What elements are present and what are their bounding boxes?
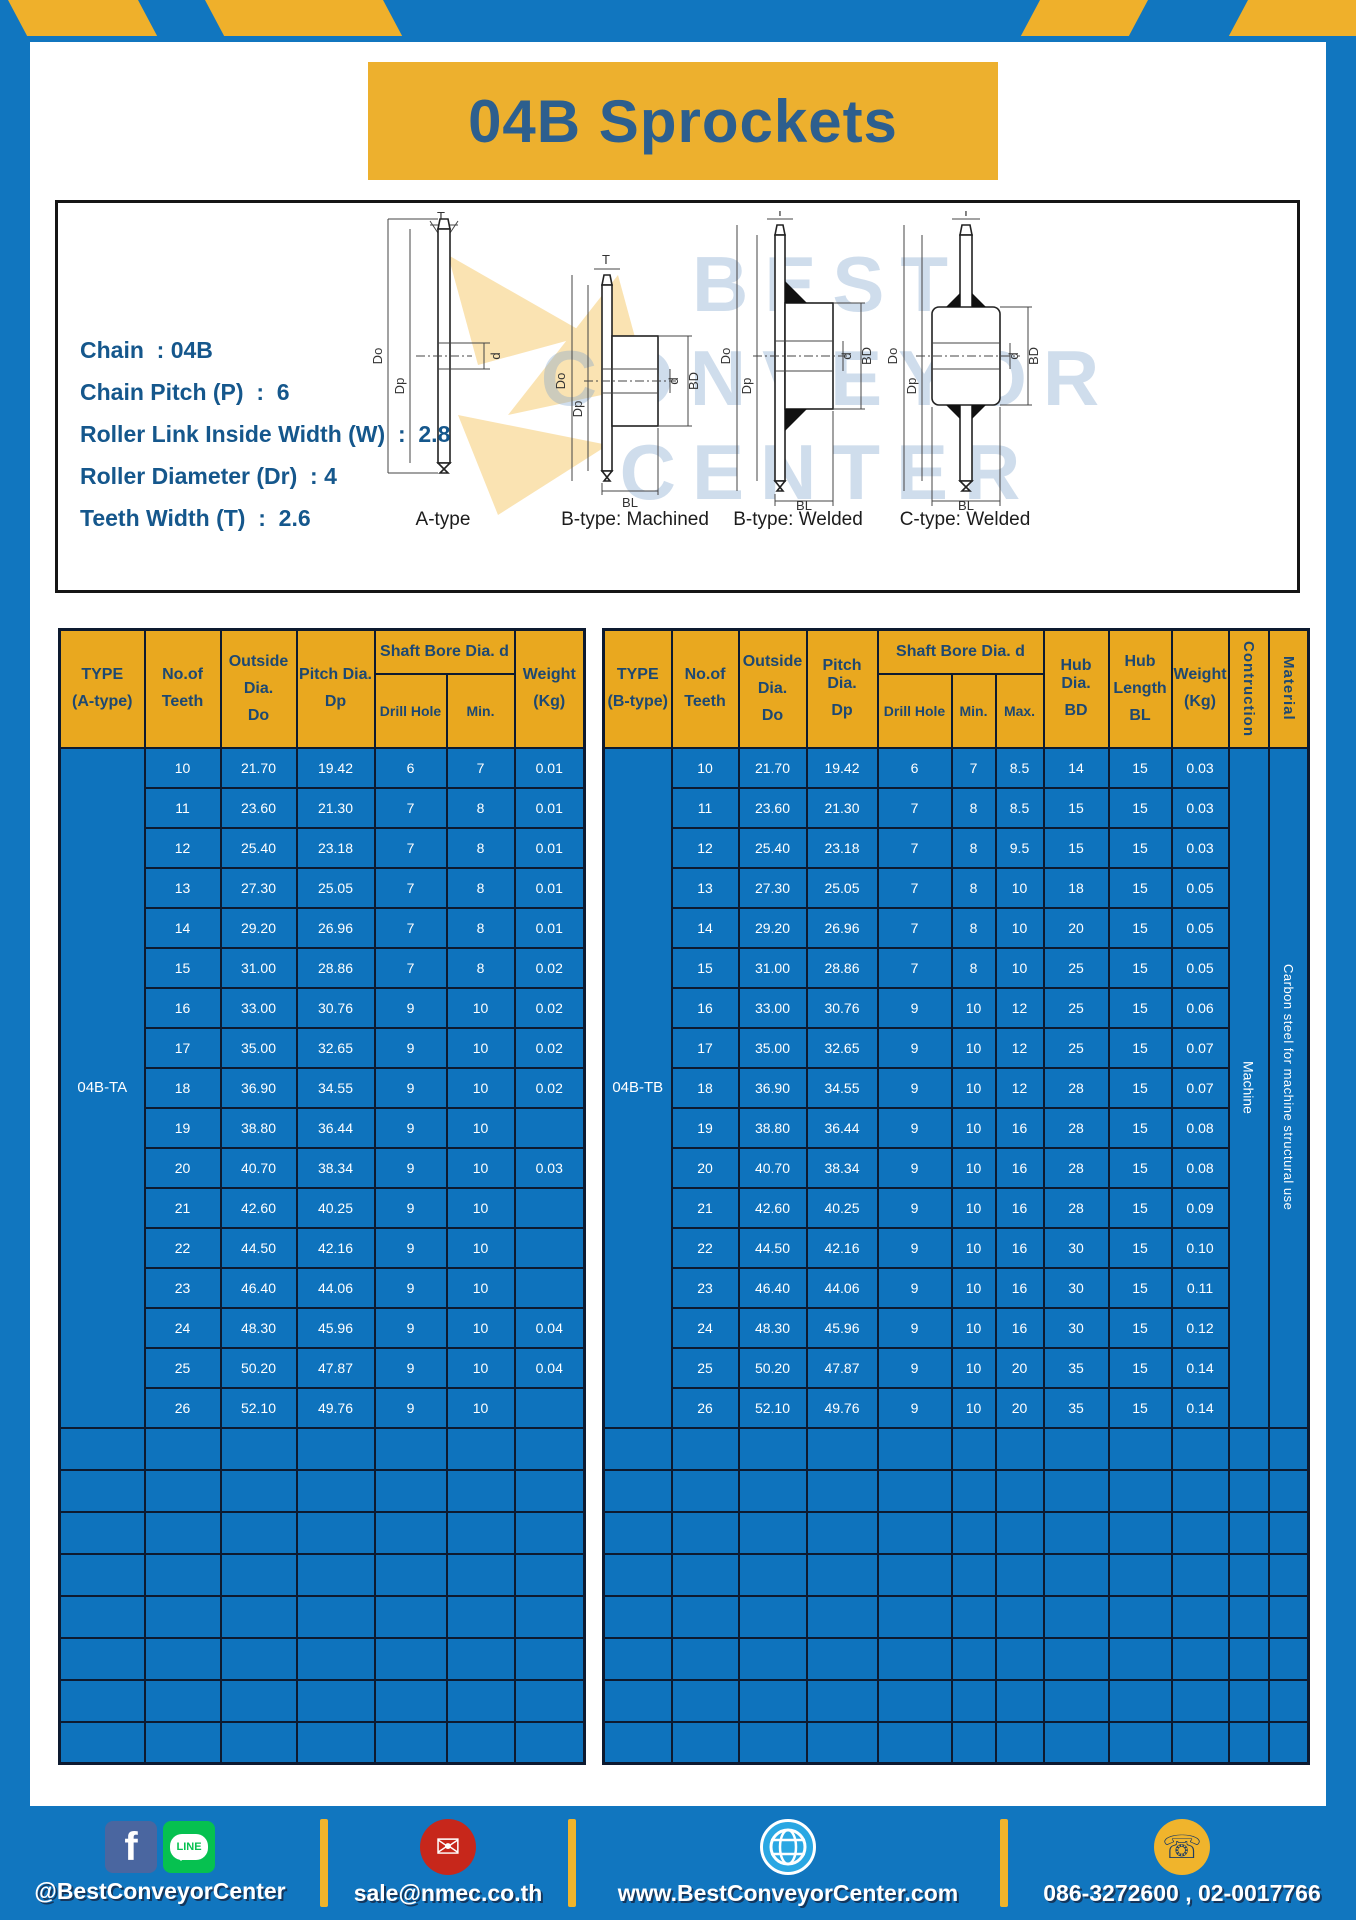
top-striped-band <box>0 0 1356 42</box>
data-cell: 28.86 <box>807 948 878 988</box>
svg-text:Dp: Dp <box>570 401 585 418</box>
data-cell: 26 <box>145 1388 221 1428</box>
data-cell: 25.05 <box>297 868 375 908</box>
empty-cell <box>1229 1428 1269 1470</box>
construction-value-cell: Machine <box>1229 748 1269 1428</box>
data-cell: 7 <box>375 948 447 988</box>
empty-cell <box>297 1680 375 1722</box>
empty-table-row <box>60 1470 585 1512</box>
data-cell: 10 <box>952 1228 996 1268</box>
data-cell: 18 <box>672 1068 739 1108</box>
data-cell: 0.10 <box>1172 1228 1229 1268</box>
empty-cell <box>297 1470 375 1512</box>
footer-divider <box>568 1819 576 1907</box>
empty-cell <box>604 1470 672 1512</box>
empty-cell <box>996 1638 1044 1680</box>
data-cell <box>515 1228 585 1268</box>
data-cell: 30.76 <box>297 988 375 1028</box>
data-cell: 9 <box>878 988 952 1028</box>
data-cell: 10 <box>952 1148 996 1188</box>
data-cell: 0.02 <box>515 988 585 1028</box>
footer-divider <box>320 1819 328 1907</box>
empty-cell <box>672 1512 739 1554</box>
empty-table-row <box>60 1722 585 1764</box>
data-cell: 8 <box>447 788 515 828</box>
data-cell: 10 <box>145 748 221 788</box>
empty-cell <box>60 1554 145 1596</box>
empty-cell <box>878 1722 952 1764</box>
data-cell: 10 <box>952 1028 996 1068</box>
data-cell: 0.01 <box>515 908 585 948</box>
empty-table-row <box>604 1722 1309 1764</box>
line-icon: LINE <box>163 1821 215 1873</box>
data-cell: 28 <box>1044 1108 1109 1148</box>
table-row: 1225.4023.18789.515150.03 <box>604 828 1309 868</box>
data-cell: 10 <box>952 1188 996 1228</box>
empty-cell <box>952 1638 996 1680</box>
empty-cell <box>375 1680 447 1722</box>
data-cell: 12 <box>996 1028 1044 1068</box>
decor-stripe <box>1229 0 1356 36</box>
data-cell: 24 <box>145 1308 221 1348</box>
empty-cell <box>1044 1470 1109 1512</box>
empty-cell <box>145 1554 221 1596</box>
data-cell: 10 <box>447 1388 515 1428</box>
empty-cell <box>447 1680 515 1722</box>
data-cell: 16 <box>996 1308 1044 1348</box>
col-header-hub-length: HubLengthBL <box>1109 630 1172 748</box>
empty-cell <box>1172 1470 1229 1512</box>
data-cell <box>515 1388 585 1428</box>
empty-cell <box>375 1512 447 1554</box>
empty-cell <box>952 1428 996 1470</box>
data-cell: 46.40 <box>739 1268 807 1308</box>
data-cell: 7 <box>878 788 952 828</box>
empty-cell <box>515 1596 585 1638</box>
data-cell: 25 <box>1044 948 1109 988</box>
col-header-teeth: No.ofTeeth <box>145 630 221 748</box>
empty-cell <box>221 1596 297 1638</box>
decor-stripe <box>8 0 157 36</box>
table-row: 1836.9034.559101228150.07 <box>604 1068 1309 1108</box>
data-cell: 38.80 <box>221 1108 297 1148</box>
empty-cell <box>878 1428 952 1470</box>
data-cell: 0.03 <box>1172 788 1229 828</box>
data-cell: 16 <box>996 1148 1044 1188</box>
table-row: 2040.7038.349101628150.08 <box>604 1148 1309 1188</box>
empty-cell <box>60 1722 145 1764</box>
empty-cell <box>1044 1512 1109 1554</box>
data-cell: 8 <box>952 948 996 988</box>
empty-cell <box>145 1512 221 1554</box>
data-cell: 0.09 <box>1172 1188 1229 1228</box>
empty-cell <box>878 1554 952 1596</box>
data-cell: 13 <box>145 868 221 908</box>
empty-cell <box>1269 1596 1309 1638</box>
data-cell: 10 <box>447 1228 515 1268</box>
empty-cell <box>375 1596 447 1638</box>
empty-cell <box>807 1428 878 1470</box>
empty-table-row <box>604 1596 1309 1638</box>
data-cell: 44.50 <box>739 1228 807 1268</box>
data-cell: 8 <box>447 948 515 988</box>
svg-text:BD: BD <box>1026 347 1041 365</box>
data-cell: 38.34 <box>807 1148 878 1188</box>
data-cell: 20 <box>1044 908 1109 948</box>
data-cell: 49.76 <box>297 1388 375 1428</box>
empty-cell <box>1172 1638 1229 1680</box>
empty-cell <box>739 1428 807 1470</box>
data-cell: 9 <box>878 1388 952 1428</box>
datasheet-page: 04B Sprockets BEST CONVEYOR CENTER Chain… <box>0 0 1356 1920</box>
data-cell: 14 <box>672 908 739 948</box>
svg-text:T: T <box>602 252 610 267</box>
empty-cell <box>1109 1470 1172 1512</box>
globe-icon <box>760 1819 816 1875</box>
data-cell: 12 <box>145 828 221 868</box>
empty-cell <box>1109 1428 1172 1470</box>
svg-text:BL: BL <box>622 495 638 510</box>
data-cell: 9 <box>878 1188 952 1228</box>
data-cell: 40.70 <box>221 1148 297 1188</box>
empty-cell <box>1172 1554 1229 1596</box>
data-cell: 10 <box>447 1068 515 1108</box>
data-cell: 10 <box>952 1388 996 1428</box>
data-cell: 30.76 <box>807 988 878 1028</box>
data-cell: 10 <box>996 868 1044 908</box>
data-cell: 19 <box>145 1108 221 1148</box>
data-cell: 15 <box>1109 1148 1172 1188</box>
data-cell: 45.96 <box>807 1308 878 1348</box>
data-cell: 15 <box>1109 1308 1172 1348</box>
empty-cell <box>996 1428 1044 1470</box>
table-row: 2244.5042.169101630150.10 <box>604 1228 1309 1268</box>
data-cell: 9 <box>375 1028 447 1068</box>
data-cell: 16 <box>996 1268 1044 1308</box>
col-header-min: Min. <box>447 674 515 748</box>
empty-cell <box>807 1512 878 1554</box>
col-header-hub-dia: Hub Dia.BD <box>1044 630 1109 748</box>
data-cell: 23.18 <box>297 828 375 868</box>
data-cell: 23 <box>145 1268 221 1308</box>
empty-cell <box>375 1638 447 1680</box>
email-address: sale@nmec.co.th <box>354 1880 543 1907</box>
footer-social-section: f LINE @BestConveyorCenter <box>0 1806 320 1920</box>
empty-cell <box>807 1470 878 1512</box>
empty-cell <box>672 1554 739 1596</box>
data-cell: 42.60 <box>739 1188 807 1228</box>
empty-cell <box>952 1512 996 1554</box>
data-cell: 0.02 <box>515 1068 585 1108</box>
data-cell: 23.60 <box>221 788 297 828</box>
drawing-type-label: B-type: Welded <box>703 509 893 531</box>
empty-cell <box>604 1512 672 1554</box>
empty-cell <box>739 1596 807 1638</box>
data-cell: 19.42 <box>807 748 878 788</box>
decor-stripe <box>1021 0 1148 36</box>
empty-cell <box>996 1722 1044 1764</box>
empty-cell <box>515 1428 585 1470</box>
empty-cell <box>447 1554 515 1596</box>
contact-footer: f LINE @BestConveyorCenter ✉ sale@nmec.c… <box>0 1806 1356 1920</box>
data-cell: 8 <box>952 908 996 948</box>
data-cell: 20 <box>996 1348 1044 1388</box>
table-row: 1938.8036.449101628150.08 <box>604 1108 1309 1148</box>
data-cell: 21.30 <box>297 788 375 828</box>
data-cell: 23.60 <box>739 788 807 828</box>
data-cell: 15 <box>1109 1348 1172 1388</box>
table-row: 2346.4044.069101630150.11 <box>604 1268 1309 1308</box>
table-row: 04B-TB1021.7019.42678.514150.03MachineCa… <box>604 748 1309 788</box>
facebook-icon: f <box>105 1821 157 1873</box>
empty-table-row <box>60 1638 585 1680</box>
data-cell: 50.20 <box>739 1348 807 1388</box>
empty-cell <box>1269 1638 1309 1680</box>
empty-cell <box>1172 1428 1229 1470</box>
empty-cell <box>221 1512 297 1554</box>
empty-cell <box>145 1638 221 1680</box>
data-cell: 9 <box>878 1308 952 1348</box>
empty-cell <box>807 1554 878 1596</box>
svg-text:d: d <box>488 352 503 359</box>
empty-cell <box>604 1428 672 1470</box>
empty-cell <box>447 1512 515 1554</box>
data-cell: 13 <box>672 868 739 908</box>
empty-cell <box>604 1638 672 1680</box>
data-cell: 40.70 <box>739 1148 807 1188</box>
data-cell: 9 <box>375 1348 447 1388</box>
empty-cell <box>739 1722 807 1764</box>
empty-cell <box>1229 1596 1269 1638</box>
data-cell: 0.03 <box>1172 828 1229 868</box>
empty-cell <box>1109 1722 1172 1764</box>
data-cell: 33.00 <box>221 988 297 1028</box>
empty-cell <box>878 1470 952 1512</box>
table-row: 2142.6040.259101628150.09 <box>604 1188 1309 1228</box>
empty-table-row <box>604 1428 1309 1470</box>
data-cell: 7 <box>447 748 515 788</box>
data-cell: 0.14 <box>1172 1348 1229 1388</box>
data-cell: 42.60 <box>221 1188 297 1228</box>
data-cell: 24 <box>672 1308 739 1348</box>
data-cell: 0.04 <box>515 1348 585 1388</box>
data-cell: 27.30 <box>739 868 807 908</box>
email-icon: ✉ <box>420 1819 476 1875</box>
data-cell: 15 <box>1109 868 1172 908</box>
empty-table-row <box>60 1428 585 1470</box>
table-row: 2550.2047.879102035150.14 <box>604 1348 1309 1388</box>
table-row: 1735.0032.659101225150.07 <box>604 1028 1309 1068</box>
empty-cell <box>515 1512 585 1554</box>
technical-drawing-panel: BEST CONVEYOR CENTER Chain : 04B Chain P… <box>55 200 1300 593</box>
empty-cell <box>739 1638 807 1680</box>
data-cell: 7 <box>952 748 996 788</box>
empty-cell <box>60 1596 145 1638</box>
table-row: 2448.3045.969101630150.12 <box>604 1308 1309 1348</box>
data-cell: 7 <box>878 948 952 988</box>
data-cell: 28 <box>1044 1068 1109 1108</box>
data-cell: 47.87 <box>297 1348 375 1388</box>
data-cell: 44.06 <box>297 1268 375 1308</box>
data-cell: 21 <box>672 1188 739 1228</box>
empty-cell <box>604 1554 672 1596</box>
data-cell: 15 <box>1044 788 1109 828</box>
data-cell: 16 <box>145 988 221 1028</box>
data-cell: 28.86 <box>297 948 375 988</box>
empty-cell <box>1269 1470 1309 1512</box>
data-cell: 15 <box>1109 908 1172 948</box>
table-row: 1429.2026.96781020150.05 <box>604 908 1309 948</box>
data-cell: 28 <box>1044 1148 1109 1188</box>
empty-cell <box>1269 1512 1309 1554</box>
data-cell: 21.70 <box>739 748 807 788</box>
data-cell: 23 <box>672 1268 739 1308</box>
data-cell: 0.01 <box>515 788 585 828</box>
table-row: 04B-TA1021.7019.42670.01 <box>60 748 585 788</box>
data-cell: 10 <box>447 1108 515 1148</box>
empty-cell <box>1044 1680 1109 1722</box>
website-url: www.BestConveyorCenter.com <box>618 1880 958 1907</box>
col-header-drill-hole: Drill Hole <box>878 674 952 748</box>
data-cell: 10 <box>996 948 1044 988</box>
page-title: 04B Sprockets <box>468 87 898 156</box>
empty-cell <box>145 1680 221 1722</box>
footer-website-section: www.BestConveyorCenter.com <box>576 1806 1000 1920</box>
empty-cell <box>60 1638 145 1680</box>
svg-text:T: T <box>776 211 784 219</box>
data-cell: 26.96 <box>297 908 375 948</box>
svg-text:Do: Do <box>553 373 568 390</box>
data-cell: 38.80 <box>739 1108 807 1148</box>
data-cell: 33.00 <box>739 988 807 1028</box>
data-cell: 47.87 <box>807 1348 878 1388</box>
data-cell: 31.00 <box>221 948 297 988</box>
data-cell: 10 <box>952 1348 996 1388</box>
empty-cell <box>952 1470 996 1512</box>
empty-cell <box>878 1680 952 1722</box>
empty-cell <box>1109 1596 1172 1638</box>
empty-cell <box>952 1554 996 1596</box>
data-cell: 10 <box>952 1068 996 1108</box>
data-cell: 9 <box>878 1268 952 1308</box>
data-cell: 16 <box>996 1228 1044 1268</box>
data-cell: 30 <box>1044 1308 1109 1348</box>
data-cell: 7 <box>878 908 952 948</box>
empty-cell <box>60 1680 145 1722</box>
empty-cell <box>1269 1680 1309 1722</box>
data-cell: 18 <box>1044 868 1109 908</box>
empty-table-row <box>604 1512 1309 1554</box>
empty-cell <box>447 1470 515 1512</box>
chain-spec-list: Chain : 04B Chain Pitch (P) : 6 Roller L… <box>80 329 450 539</box>
data-cell: 35.00 <box>221 1028 297 1068</box>
data-cell: 20 <box>145 1148 221 1188</box>
data-cell: 0.01 <box>515 868 585 908</box>
col-header-construction: Contruction <box>1229 630 1269 748</box>
empty-table-row <box>604 1638 1309 1680</box>
data-cell: 10 <box>996 908 1044 948</box>
data-cell: 35.00 <box>739 1028 807 1068</box>
data-cell: 28 <box>1044 1188 1109 1228</box>
data-cell: 0.12 <box>1172 1308 1229 1348</box>
data-cell: 10 <box>447 988 515 1028</box>
empty-cell <box>1269 1722 1309 1764</box>
data-cell: 36.90 <box>221 1068 297 1108</box>
empty-cell <box>1109 1680 1172 1722</box>
empty-cell <box>1229 1722 1269 1764</box>
data-cell: 0.05 <box>1172 948 1229 988</box>
data-cell: 10 <box>447 1308 515 1348</box>
empty-cell <box>739 1554 807 1596</box>
data-cell: 0.05 <box>1172 908 1229 948</box>
data-cell: 7 <box>375 788 447 828</box>
col-header-drill-hole: Drill Hole <box>375 674 447 748</box>
empty-cell <box>1229 1554 1269 1596</box>
data-cell: 36.90 <box>739 1068 807 1108</box>
data-cell <box>515 1108 585 1148</box>
empty-cell <box>1172 1512 1229 1554</box>
data-cell: 25 <box>145 1348 221 1388</box>
data-cell: 38.34 <box>297 1148 375 1188</box>
sprocket-drawing-b-welded: T Do Dp d BD <box>713 211 883 516</box>
empty-cell <box>1044 1722 1109 1764</box>
empty-cell <box>1269 1428 1309 1470</box>
empty-cell <box>604 1680 672 1722</box>
type-value-cell: 04B-TA <box>60 748 145 1428</box>
data-cell: 35 <box>1044 1348 1109 1388</box>
data-cell: 8 <box>447 828 515 868</box>
empty-cell <box>447 1596 515 1638</box>
svg-text:BD: BD <box>686 372 701 390</box>
data-cell: 31.00 <box>739 948 807 988</box>
data-cell: 9 <box>375 1148 447 1188</box>
empty-cell <box>1269 1554 1309 1596</box>
col-header-weight: Weight(Kg) <box>515 630 585 748</box>
data-cell: 0.02 <box>515 948 585 988</box>
sprocket-drawing-b-machined: T Do Dp d BD BL <box>550 251 720 516</box>
data-cell <box>515 1188 585 1228</box>
data-cell: 48.30 <box>739 1308 807 1348</box>
empty-cell <box>672 1428 739 1470</box>
data-cell: 15 <box>1109 1228 1172 1268</box>
data-cell: 9 <box>878 1028 952 1068</box>
empty-cell <box>1172 1596 1229 1638</box>
data-cell: 9 <box>375 1388 447 1428</box>
empty-table-row <box>60 1512 585 1554</box>
decor-stripe <box>205 0 402 36</box>
empty-cell <box>221 1722 297 1764</box>
col-header-type: TYPE(A-type) <box>60 630 145 748</box>
empty-cell <box>1109 1638 1172 1680</box>
data-cell: 16 <box>996 1108 1044 1148</box>
empty-cell <box>878 1512 952 1554</box>
svg-text:d: d <box>1006 352 1021 359</box>
data-cell: 0.05 <box>1172 868 1229 908</box>
sprocket-table-a-type: TYPE(A-type) No.ofTeeth OutsideDia.Do Pi… <box>58 628 586 1765</box>
data-cell: 9 <box>375 1188 447 1228</box>
data-cell: 12 <box>996 1068 1044 1108</box>
empty-table-row <box>60 1554 585 1596</box>
data-cell: 6 <box>878 748 952 788</box>
data-cell: 9 <box>878 1228 952 1268</box>
empty-cell <box>297 1596 375 1638</box>
empty-cell <box>1229 1512 1269 1554</box>
empty-cell <box>447 1638 515 1680</box>
empty-cell <box>878 1596 952 1638</box>
col-header-pitch-dia: Pitch Dia.Dp <box>807 630 878 748</box>
data-cell: 0.08 <box>1172 1148 1229 1188</box>
data-cell: 23.18 <box>807 828 878 868</box>
